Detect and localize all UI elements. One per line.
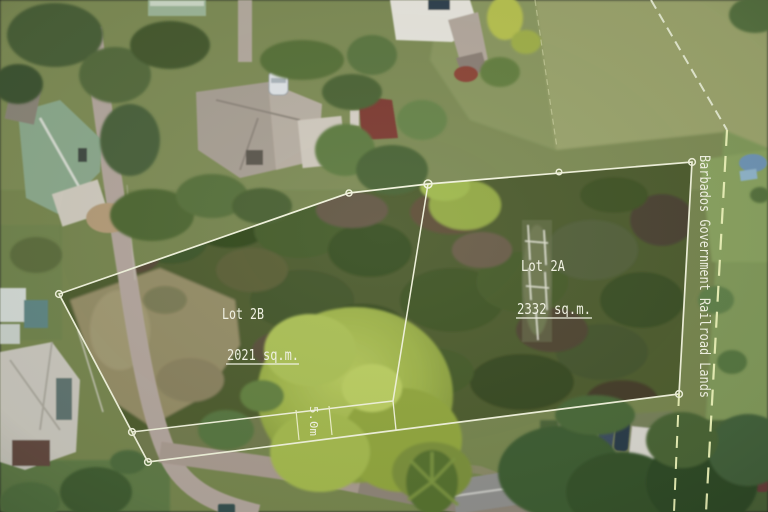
photo-vignette [0,0,768,512]
aerial-photo: Lot 2B 2021 sq.m. Lot 2A 2332 sq.m. Barb… [0,0,768,512]
